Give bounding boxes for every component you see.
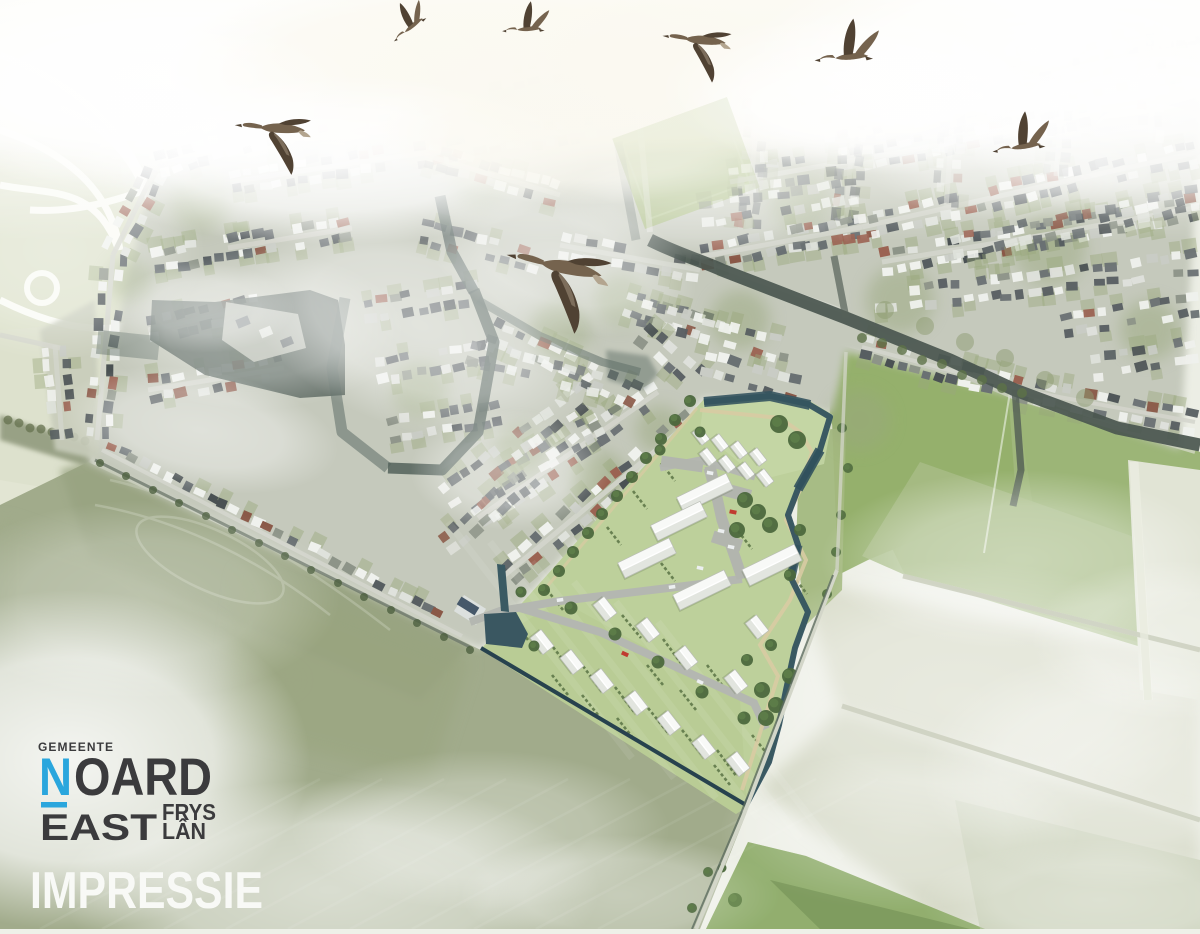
svg-text:EAST: EAST [40, 807, 157, 848]
svg-text:LÂN: LÂN [162, 817, 206, 844]
svg-text:N: N [39, 748, 72, 807]
svg-text:IMPRESSIE: IMPRESSIE [30, 862, 263, 920]
